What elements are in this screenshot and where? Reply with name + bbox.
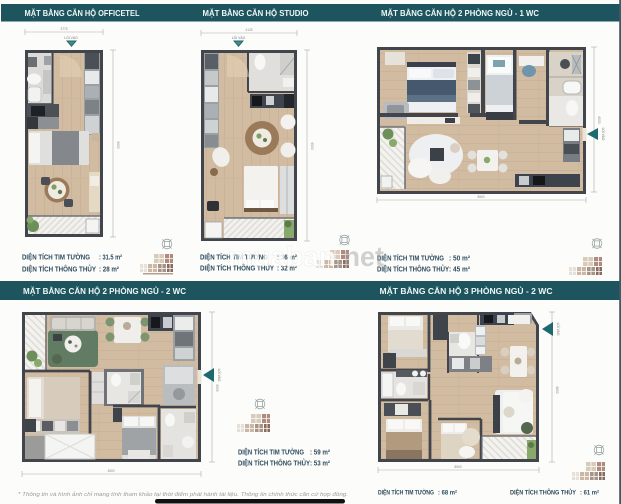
svg-text:DIỆN TÍCH THÔNG THỦY: DIỆN TÍCH THÔNG THỦY xyxy=(377,265,449,274)
svg-text:: 28 m²: : 28 m² xyxy=(99,267,120,274)
svg-text:: 68 m²: : 68 m² xyxy=(438,490,458,497)
svg-text:* Thông tin và hình ảnh chỉ ma: * Thông tin và hình ảnh chỉ mang tính th… xyxy=(18,491,348,498)
svg-text:MẶT BẰNG CĂN HỘ 3 PHÒNG NGỦ -: MẶT BẰNG CĂN HỘ 3 PHÒNG NGỦ - 2 WC xyxy=(380,285,553,296)
svg-text:LỐI VÀO: LỐI VÀO xyxy=(217,369,222,382)
svg-text:: 31.5 m²: : 31.5 m² xyxy=(99,255,123,262)
svg-text:8500: 8500 xyxy=(477,195,484,199)
svg-text:DIỆN TÍCH THÔNG THỦY: DIỆN TÍCH THÔNG THỦY xyxy=(22,265,96,274)
svg-text:4500: 4500 xyxy=(107,469,114,473)
svg-text:6000: 6000 xyxy=(310,142,314,149)
svg-text:LỐI VÀO: LỐI VÀO xyxy=(556,323,561,336)
svg-text:DIỆN TÍCH THÔNG THỦY: DIỆN TÍCH THÔNG THỦY xyxy=(238,459,310,468)
svg-text:6900: 6900 xyxy=(215,384,219,391)
svg-text:LỐI VÀO: LỐI VÀO xyxy=(232,35,246,40)
svg-text:4125: 4125 xyxy=(245,28,252,32)
svg-text:LỐI VÀO: LỐI VÀO xyxy=(64,35,78,40)
svg-text:6600: 6600 xyxy=(555,386,559,393)
svg-text:6000: 6000 xyxy=(116,141,120,148)
svg-text:: 61 m²: : 61 m² xyxy=(580,490,600,497)
svg-text:DIỆN TÍCH TIM TƯỜNG: DIỆN TÍCH TIM TƯỜNG xyxy=(22,253,90,262)
svg-text:MẶT BẰNG CĂN HỘ 2 PHÒNG NGỦ -: MẶT BẰNG CĂN HỘ 2 PHÒNG NGỦ - 2 WC xyxy=(23,285,186,296)
svg-text:: 53 m²: : 53 m² xyxy=(310,461,331,468)
svg-text:: 50 m²: : 50 m² xyxy=(449,256,471,263)
svg-text:MẶT BẰNG CĂN HỘ 2 PHÒNG NGỦ -: MẶT BẰNG CĂN HỘ 2 PHÒNG NGỦ - 1 WC xyxy=(381,7,539,18)
svg-text:DIỆN TÍCH THÔNG THỦY: DIỆN TÍCH THÔNG THỦY xyxy=(510,488,577,497)
svg-text:3775: 3775 xyxy=(60,27,67,31)
svg-text:MẶT BẰNG CĂN HỘ OFFICETEL: MẶT BẰNG CĂN HỘ OFFICETEL xyxy=(25,7,140,18)
svg-text:.net: .net xyxy=(336,241,384,272)
svg-text:: 59 m²: : 59 m² xyxy=(310,450,331,457)
svg-text:8500: 8500 xyxy=(454,465,461,469)
svg-text:muaban: muaban xyxy=(228,241,336,272)
svg-text:: 45 m²: : 45 m² xyxy=(449,267,471,274)
svg-text:LỐI VÀO: LỐI VÀO xyxy=(601,128,606,141)
svg-text:DIỆN TÍCH TIM TƯỜNG: DIỆN TÍCH TIM TƯỜNG xyxy=(377,254,444,263)
svg-text:DIỆN TÍCH TIM TƯỜNG: DIỆN TÍCH TIM TƯỜNG xyxy=(378,488,434,497)
svg-text:MẶT BẰNG CĂN HỘ STUDIO: MẶT BẰNG CĂN HỘ STUDIO xyxy=(203,7,310,18)
svg-text:DIỆN TÍCH TIM TƯỜNG: DIỆN TÍCH TIM TƯỜNG xyxy=(238,448,304,457)
svg-text:6000: 6000 xyxy=(597,116,601,123)
